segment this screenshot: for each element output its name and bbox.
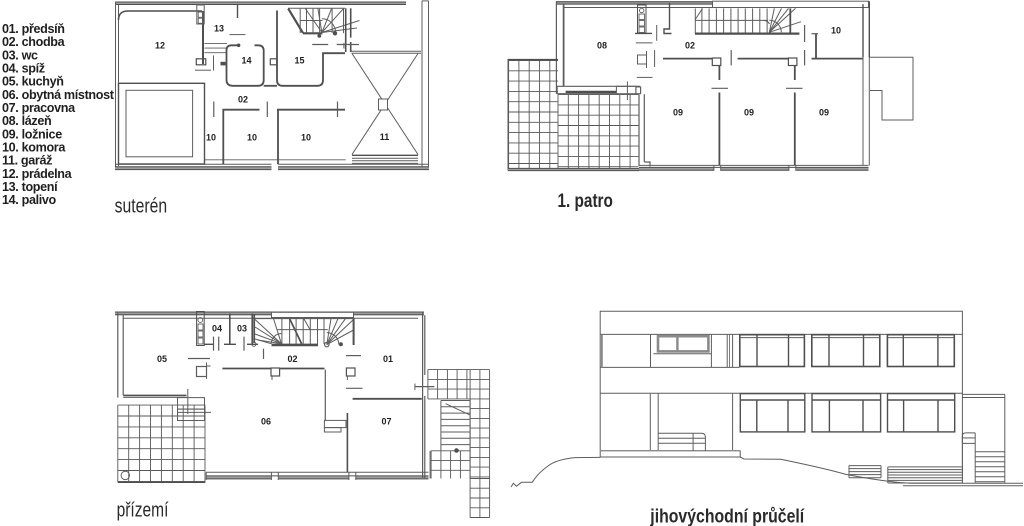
svg-text:03: 03: [237, 324, 247, 334]
svg-text:přízemí: přízemí: [117, 499, 169, 521]
svg-text:06. obytná místnost: 06. obytná místnost: [2, 88, 115, 102]
svg-text:09: 09: [673, 108, 683, 118]
svg-text:06: 06: [261, 417, 271, 427]
svg-text:11. garáž: 11. garáž: [2, 154, 52, 168]
svg-text:13. topení: 13. topení: [2, 180, 58, 194]
svg-text:12: 12: [155, 41, 165, 51]
svg-text:02: 02: [685, 41, 695, 51]
svg-text:09: 09: [819, 108, 829, 118]
svg-text:14. palivo: 14. palivo: [2, 193, 57, 207]
svg-text:11: 11: [380, 132, 390, 142]
svg-text:15: 15: [294, 56, 304, 66]
svg-text:04: 04: [212, 324, 222, 334]
svg-text:07: 07: [381, 417, 391, 427]
svg-text:09. ložnice: 09. ložnice: [2, 127, 62, 141]
svg-text:05: 05: [157, 354, 167, 364]
svg-text:09: 09: [744, 108, 754, 118]
svg-text:12. prádelna: 12. prádelna: [2, 167, 73, 181]
svg-text:01: 01: [383, 354, 393, 364]
svg-text:10. komora: 10. komora: [2, 141, 66, 155]
svg-text:02: 02: [238, 95, 248, 105]
svg-text:08: 08: [597, 41, 607, 51]
svg-text:10: 10: [831, 26, 841, 36]
svg-text:13: 13: [214, 24, 224, 34]
svg-text:08. lázeň: 08. lázeň: [2, 114, 51, 128]
svg-text:10: 10: [247, 133, 257, 143]
svg-text:03. wc: 03. wc: [2, 48, 38, 62]
svg-text:04. spíž: 04. spíž: [2, 62, 45, 76]
svg-text:10: 10: [206, 133, 216, 143]
svg-text:01. předsíň: 01. předsíň: [2, 22, 65, 36]
svg-text:jihovýchodní průčelí: jihovýchodní průčelí: [649, 506, 804, 526]
svg-text:suterén: suterén: [115, 196, 168, 218]
svg-text:05. kuchyň: 05. kuchyň: [2, 75, 64, 89]
svg-text:1. patro: 1. patro: [558, 190, 613, 212]
svg-text:14: 14: [241, 56, 251, 66]
svg-text:02. chodba: 02. chodba: [2, 35, 66, 49]
svg-text:07. pracovna: 07. pracovna: [2, 101, 76, 115]
svg-text:02: 02: [287, 354, 297, 364]
svg-text:10: 10: [301, 133, 311, 143]
